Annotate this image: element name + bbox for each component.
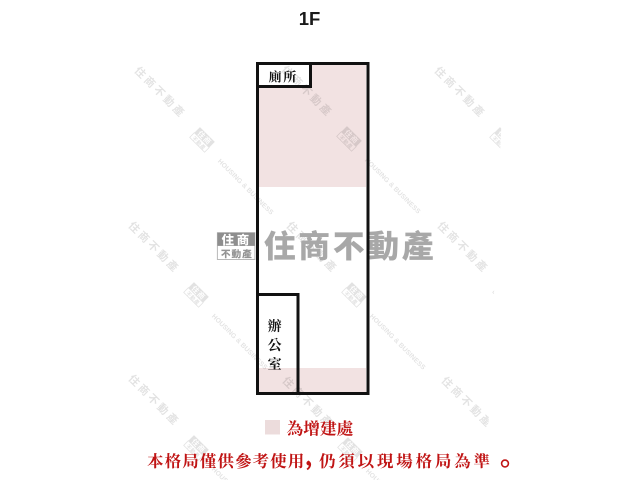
svg-text:1F: 1F <box>299 8 321 29</box>
